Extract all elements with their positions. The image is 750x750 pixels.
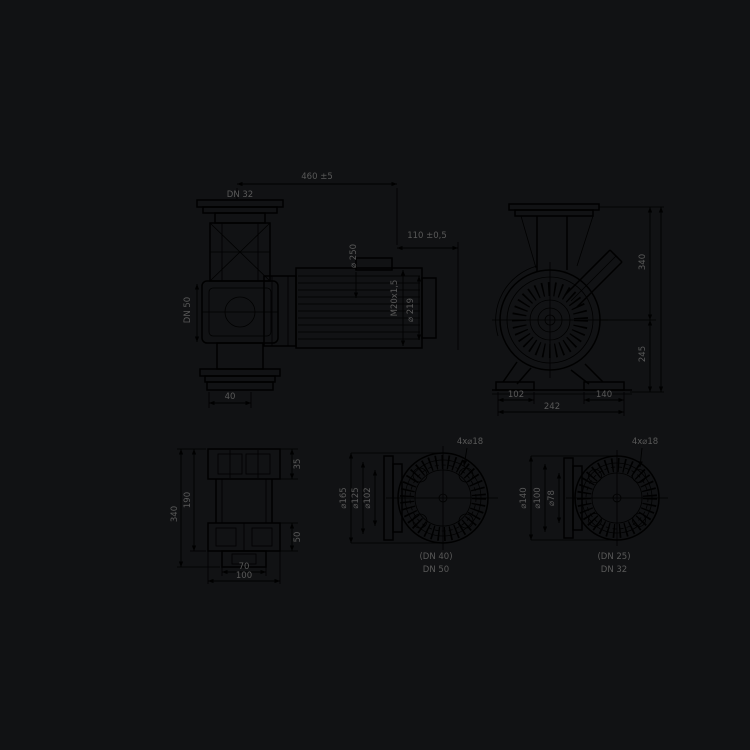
label-flange-b: DN 32: [601, 565, 627, 575]
dim-shaft: 110 ±0,5: [407, 231, 447, 241]
dim-width-outer: 100: [236, 571, 252, 581]
dim-length-inner: 190: [183, 492, 193, 508]
dim-flange-a-outer: ⌀165: [339, 487, 349, 508]
front-outline: [492, 204, 632, 394]
callout-flange-a-holes: 4x⌀18: [457, 437, 483, 447]
label-flange-a-alt: (DN 40): [419, 552, 452, 562]
dim-overall-length: 460 ±5: [301, 172, 332, 182]
technical-drawing: 460 ±5 110 ±0,5 DN 32 ⌀ 250 M20x1,5 ⌀ 21…: [0, 0, 750, 750]
label-flange-top: DN 32: [227, 190, 253, 200]
dim-height-lower: 245: [638, 346, 648, 362]
label-flange-b-alt: (DN 25): [597, 552, 630, 562]
dim-foot-total: 242: [544, 402, 560, 412]
front-view: 340 245 102 140 242: [492, 204, 664, 416]
dim-foot-left: 102: [508, 390, 524, 400]
dim-foot-right: 140: [596, 390, 612, 400]
dim-flange-a-bolt: ⌀125: [351, 487, 361, 508]
dim-height-upper: 340: [638, 254, 648, 270]
dim-flange-a-face: ⌀102: [363, 487, 373, 508]
dim-slot-bottom: 50: [293, 532, 303, 543]
plan-outline: [208, 449, 280, 567]
plan-view: 340 190 35 50 70 100: [170, 449, 303, 584]
flange-detail-a: ⌀165 ⌀125 ⌀102 4x⌀18 (DN 40) DN 50: [339, 437, 498, 575]
drawing-canvas: 460 ±5 110 ±0,5 DN 32 ⌀ 250 M20x1,5 ⌀ 21…: [0, 0, 750, 750]
dim-flange-b-face: ⌀78: [547, 490, 557, 506]
dim-motor-dia: ⌀ 219: [406, 298, 416, 322]
pump-outline: [197, 200, 283, 390]
flange-b-outline: [564, 450, 668, 546]
dim-foot: 40: [225, 392, 236, 402]
dim-gland: M20x1,5: [390, 280, 400, 317]
dim-flange-b-outer: ⌀140: [519, 487, 529, 508]
dim-flange-b-bolt: ⌀100: [533, 487, 543, 508]
dim-casing-dia: ⌀ 250: [349, 244, 359, 268]
dim-slot-top: 35: [293, 459, 303, 470]
flange-detail-b: ⌀140 ⌀100 ⌀78 4x⌀18 (DN 25) DN 32: [519, 437, 668, 575]
side-view: 460 ±5 110 ±0,5 DN 32 ⌀ 250 M20x1,5 ⌀ 21…: [183, 172, 458, 408]
dim-length-outer: 340: [170, 506, 180, 522]
label-flange-a: DN 50: [423, 565, 449, 575]
callout-flange-b-holes: 4x⌀18: [632, 437, 658, 447]
label-suction: DN 50: [183, 297, 193, 323]
flange-b-dimensions: ⌀140 ⌀100 ⌀78 4x⌀18 (DN 25) DN 32: [519, 437, 658, 575]
flange-a-outline: [384, 446, 498, 550]
